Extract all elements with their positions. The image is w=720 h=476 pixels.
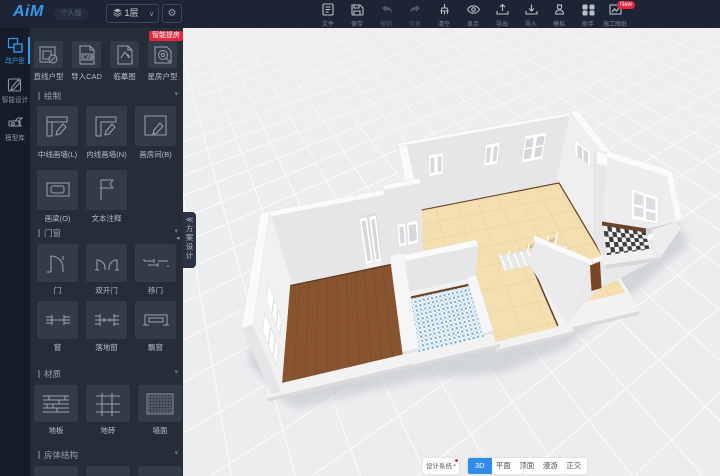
svg-text:CAD: CAD [83, 55, 94, 61]
